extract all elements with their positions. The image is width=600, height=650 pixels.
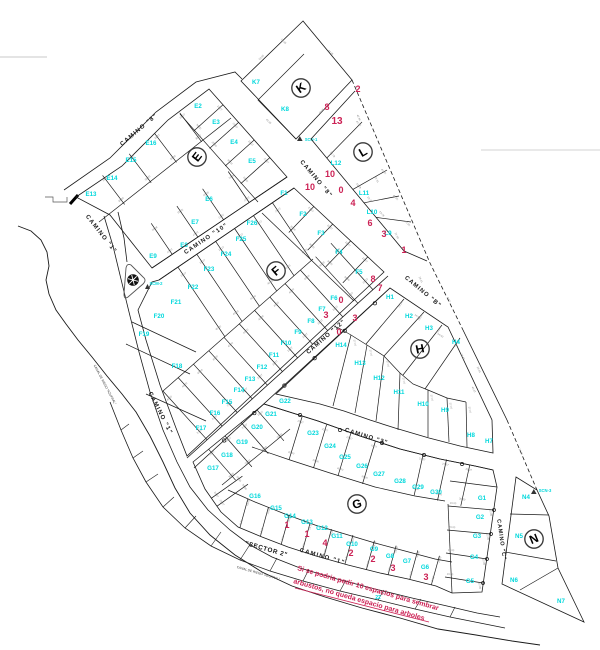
svg-text:H1: H1 xyxy=(386,294,394,301)
svg-text:G28: G28 xyxy=(394,478,406,485)
svg-text:G21: G21 xyxy=(265,411,277,418)
svg-text:F25: F25 xyxy=(236,236,247,243)
svg-text:G12: G12 xyxy=(316,525,328,532)
svg-text:20.00: 20.00 xyxy=(447,572,454,576)
svg-text:E7: E7 xyxy=(191,219,199,226)
svg-text:G30: G30 xyxy=(430,489,442,496)
svg-text:F20: F20 xyxy=(154,313,165,320)
svg-text:G25: G25 xyxy=(339,454,351,461)
svg-text:H13: H13 xyxy=(354,360,366,367)
svg-text:E15: E15 xyxy=(125,157,137,164)
svg-text:H3: H3 xyxy=(425,325,433,332)
svg-text:G19: G19 xyxy=(236,439,248,446)
svg-text:8: 8 xyxy=(324,102,329,112)
svg-text:G9: G9 xyxy=(370,546,379,553)
svg-text:E6: E6 xyxy=(205,196,213,203)
svg-text:G10: G10 xyxy=(346,541,358,548)
svg-text:7: 7 xyxy=(377,283,382,293)
svg-text:F26: F26 xyxy=(247,220,258,227)
svg-text:3: 3 xyxy=(390,563,395,573)
svg-text:0: 0 xyxy=(338,185,343,195)
svg-text:F22: F22 xyxy=(188,284,199,291)
svg-text:20.00: 20.00 xyxy=(448,548,455,552)
svg-text:G11: G11 xyxy=(331,533,343,540)
svg-text:G7: G7 xyxy=(403,558,412,565)
svg-text:H2: H2 xyxy=(405,313,413,320)
svg-text:20.00: 20.00 xyxy=(450,501,457,505)
svg-text:H14: H14 xyxy=(335,342,347,349)
svg-text:N4: N4 xyxy=(522,494,530,501)
svg-text:F10: F10 xyxy=(281,340,292,347)
svg-text:F16: F16 xyxy=(210,410,221,417)
svg-text:G29: G29 xyxy=(412,484,424,491)
svg-text:0: 0 xyxy=(338,295,343,305)
svg-text:8: 8 xyxy=(370,274,375,284)
svg-text:F11: F11 xyxy=(269,352,280,359)
svg-text:13: 13 xyxy=(331,116,343,127)
svg-text:H10: H10 xyxy=(417,401,429,408)
svg-text:G4: G4 xyxy=(470,554,479,561)
svg-text:G5: G5 xyxy=(466,578,475,585)
svg-text:F15: F15 xyxy=(222,399,233,406)
svg-text:SCN-3: SCN-3 xyxy=(539,488,552,493)
svg-text:K8: K8 xyxy=(281,106,289,113)
svg-text:N6: N6 xyxy=(510,577,518,584)
svg-text:F8: F8 xyxy=(307,318,315,325)
svg-text:G18: G18 xyxy=(221,452,233,459)
svg-text:G27: G27 xyxy=(373,471,385,478)
svg-text:F9: F9 xyxy=(294,329,302,336)
svg-text:E4: E4 xyxy=(230,139,238,146)
svg-text:3: 3 xyxy=(381,229,386,239)
svg-text:G13: G13 xyxy=(301,519,313,526)
svg-text:G16: G16 xyxy=(249,493,261,500)
svg-text:G20: G20 xyxy=(251,424,263,431)
svg-text:2: 2 xyxy=(348,548,353,558)
svg-text:4: 4 xyxy=(350,198,355,208)
svg-text:F18: F18 xyxy=(172,363,183,370)
svg-text:6: 6 xyxy=(367,218,372,228)
svg-text:10: 10 xyxy=(325,169,335,179)
svg-text:3: 3 xyxy=(423,572,428,582)
svg-text:2: 2 xyxy=(355,84,360,94)
svg-text:E2: E2 xyxy=(194,103,202,110)
svg-text:N5: N5 xyxy=(515,533,523,540)
svg-text:L10: L10 xyxy=(367,209,378,216)
svg-text:G8: G8 xyxy=(386,553,395,560)
svg-text:3: 3 xyxy=(323,310,328,320)
svg-text:F12: F12 xyxy=(257,364,268,371)
svg-text:G3: G3 xyxy=(473,533,482,540)
svg-text:F19: F19 xyxy=(139,331,150,338)
svg-text:F6: F6 xyxy=(330,295,338,302)
svg-text:G26: G26 xyxy=(356,463,368,470)
svg-text:G1: G1 xyxy=(478,495,487,502)
svg-text:E16: E16 xyxy=(145,140,157,147)
svg-text:22: 22 xyxy=(375,595,381,601)
svg-text:L11: L11 xyxy=(359,190,370,197)
svg-text:F14: F14 xyxy=(234,387,245,394)
svg-text:2: 2 xyxy=(370,554,375,564)
svg-text:F5: F5 xyxy=(355,269,363,276)
svg-text:F1: F1 xyxy=(280,190,288,197)
svg-text:H4: H4 xyxy=(452,339,460,346)
svg-text:H12: H12 xyxy=(373,375,385,382)
svg-text:G24: G24 xyxy=(324,443,336,450)
svg-text:G23: G23 xyxy=(307,430,319,437)
svg-text:4: 4 xyxy=(322,538,327,548)
svg-text:E5: E5 xyxy=(248,158,256,165)
svg-text:F21: F21 xyxy=(171,299,182,306)
svg-text:3: 3 xyxy=(352,313,357,323)
svg-text:F23: F23 xyxy=(204,266,215,273)
svg-text:E13: E13 xyxy=(85,191,97,198)
svg-text:H11: H11 xyxy=(393,389,405,396)
svg-text:10: 10 xyxy=(305,182,315,192)
svg-text:L12: L12 xyxy=(331,160,342,167)
svg-text:1: 1 xyxy=(304,529,309,539)
svg-text:F4: F4 xyxy=(335,249,343,256)
svg-text:E14: E14 xyxy=(106,175,118,182)
svg-text:F17: F17 xyxy=(196,425,207,432)
svg-text:1: 1 xyxy=(284,520,289,530)
svg-text:G15: G15 xyxy=(270,505,282,512)
svg-text:K7: K7 xyxy=(252,79,260,86)
svg-text:20.00: 20.00 xyxy=(449,525,456,529)
svg-text:1: 1 xyxy=(401,245,406,255)
svg-text:F13: F13 xyxy=(245,376,256,383)
svg-text:0: 0 xyxy=(336,327,341,337)
svg-text:G14: G14 xyxy=(284,513,296,520)
svg-text:F24: F24 xyxy=(221,251,232,258)
svg-text:SCM-2: SCM-2 xyxy=(149,281,163,286)
svg-text:G22: G22 xyxy=(279,398,291,405)
svg-text:E9: E9 xyxy=(149,253,157,260)
svg-text:E3: E3 xyxy=(212,119,220,126)
svg-text:N7: N7 xyxy=(557,598,565,605)
svg-text:G6: G6 xyxy=(421,564,430,571)
svg-text:H7: H7 xyxy=(485,438,493,445)
svg-text:G2: G2 xyxy=(476,514,485,521)
svg-text:H9: H9 xyxy=(441,407,449,414)
svg-text:F3: F3 xyxy=(317,230,325,237)
svg-text:G17: G17 xyxy=(207,465,219,472)
svg-text:F2: F2 xyxy=(299,211,307,218)
svg-text:H8: H8 xyxy=(467,432,475,439)
